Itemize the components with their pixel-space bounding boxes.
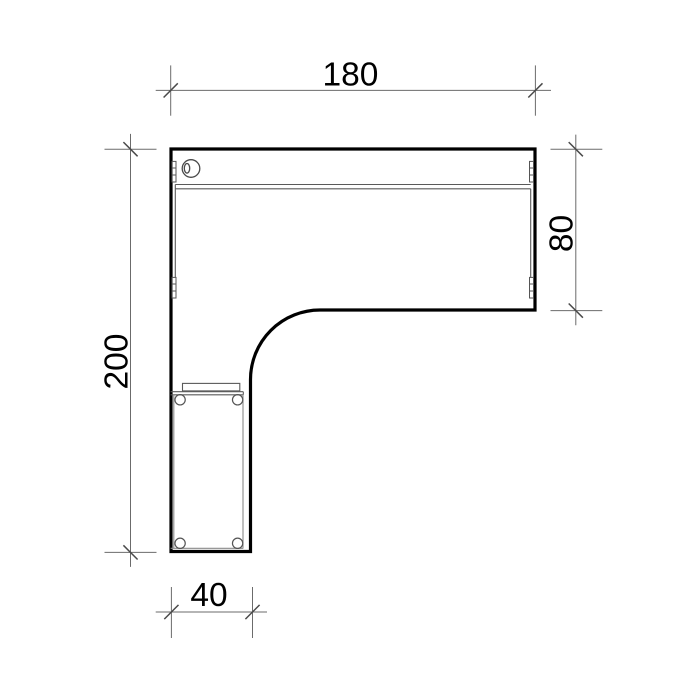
svg-text:80: 80: [544, 215, 581, 252]
svg-text:200: 200: [98, 334, 135, 390]
svg-text:180: 180: [323, 57, 379, 94]
svg-text:40: 40: [190, 577, 227, 614]
